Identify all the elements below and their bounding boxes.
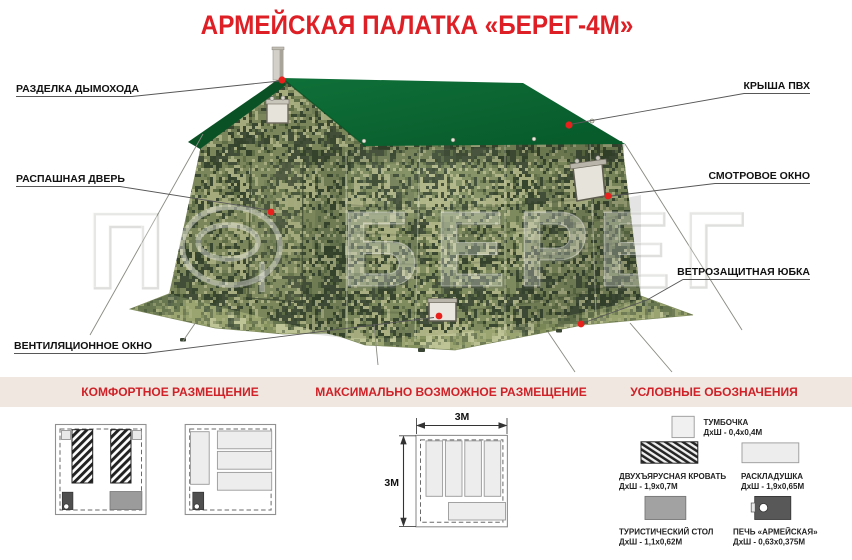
svg-text:ДВУХЪЯРУСНАЯ КРОВАТЬ: ДВУХЪЯРУСНАЯ КРОВАТЬ (619, 472, 726, 481)
svg-text:ДхШ - 1,9х0,65М: ДхШ - 1,9х0,65М (741, 482, 804, 491)
svg-text:РАСКЛАДУШКА: РАСКЛАДУШКА (741, 472, 803, 481)
svg-text:КРЫША ПВХ: КРЫША ПВХ (744, 80, 810, 92)
svg-text:РАСПАШНАЯ ДВЕРЬ: РАСПАШНАЯ ДВЕРЬ (16, 173, 125, 185)
svg-text:3М: 3М (384, 477, 399, 489)
svg-text:ВЕНТИЛЯЦИОННОЕ ОКНО: ВЕНТИЛЯЦИОННОЕ ОКНО (14, 340, 152, 352)
svg-text:УСЛОВНЫЕ ОБОЗНАЧЕНИЯ: УСЛОВНЫЕ ОБОЗНАЧЕНИЯ (630, 385, 798, 399)
svg-text:Е: Е (597, 188, 669, 309)
svg-text:Б: Б (341, 188, 419, 309)
svg-text:ТУМБОЧКА: ТУМБОЧКА (704, 418, 749, 427)
svg-text:СМОТРОВОЕ ОКНО: СМОТРОВОЕ ОКНО (708, 170, 810, 182)
svg-text:Р: Р (517, 188, 589, 309)
svg-text:КОМФОРТНОЕ РАЗМЕЩЕНИЕ: КОМФОРТНОЕ РАЗМЕЩЕНИЕ (81, 385, 258, 399)
svg-text:ДхШ - 1,1х0,62М: ДхШ - 1,1х0,62М (619, 538, 682, 547)
svg-text:МАКСИМАЛЬНО ВОЗМОЖНОЕ РАЗМЕЩЕН: МАКСИМАЛЬНО ВОЗМОЖНОЕ РАЗМЕЩЕНИЕ (315, 385, 587, 399)
svg-text:ДхШ - 0,63х0,375М: ДхШ - 0,63х0,375М (733, 538, 805, 547)
svg-text:Е: Е (434, 188, 506, 309)
svg-text:Г: Г (682, 188, 743, 309)
svg-text:ДхШ - 1,9х0,7М: ДхШ - 1,9х0,7М (619, 482, 678, 491)
svg-text:3М: 3М (455, 411, 470, 423)
svg-text:П: П (86, 189, 164, 310)
svg-text:РАЗДЕЛКА ДЫМОХОДА: РАЗДЕЛКА ДЫМОХОДА (16, 83, 140, 95)
svg-text:АРМЕЙСКАЯ ПАЛАТКА «БЕРЕГ-4М»: АРМЕЙСКАЯ ПАЛАТКА «БЕРЕГ-4М» (201, 9, 634, 41)
svg-text:ПЕЧЬ «АРМЕЙСКАЯ»: ПЕЧЬ «АРМЕЙСКАЯ» (733, 528, 818, 537)
svg-text:ТУРИСТИЧЕСКИЙ СТОЛ: ТУРИСТИЧЕСКИЙ СТОЛ (619, 528, 714, 537)
svg-text:ВЕТРОЗАЩИТНАЯ ЮБКА: ВЕТРОЗАЩИТНАЯ ЮБКА (677, 266, 810, 278)
svg-text:ДхШ - 0,4х0,4М: ДхШ - 0,4х0,4М (704, 428, 763, 437)
